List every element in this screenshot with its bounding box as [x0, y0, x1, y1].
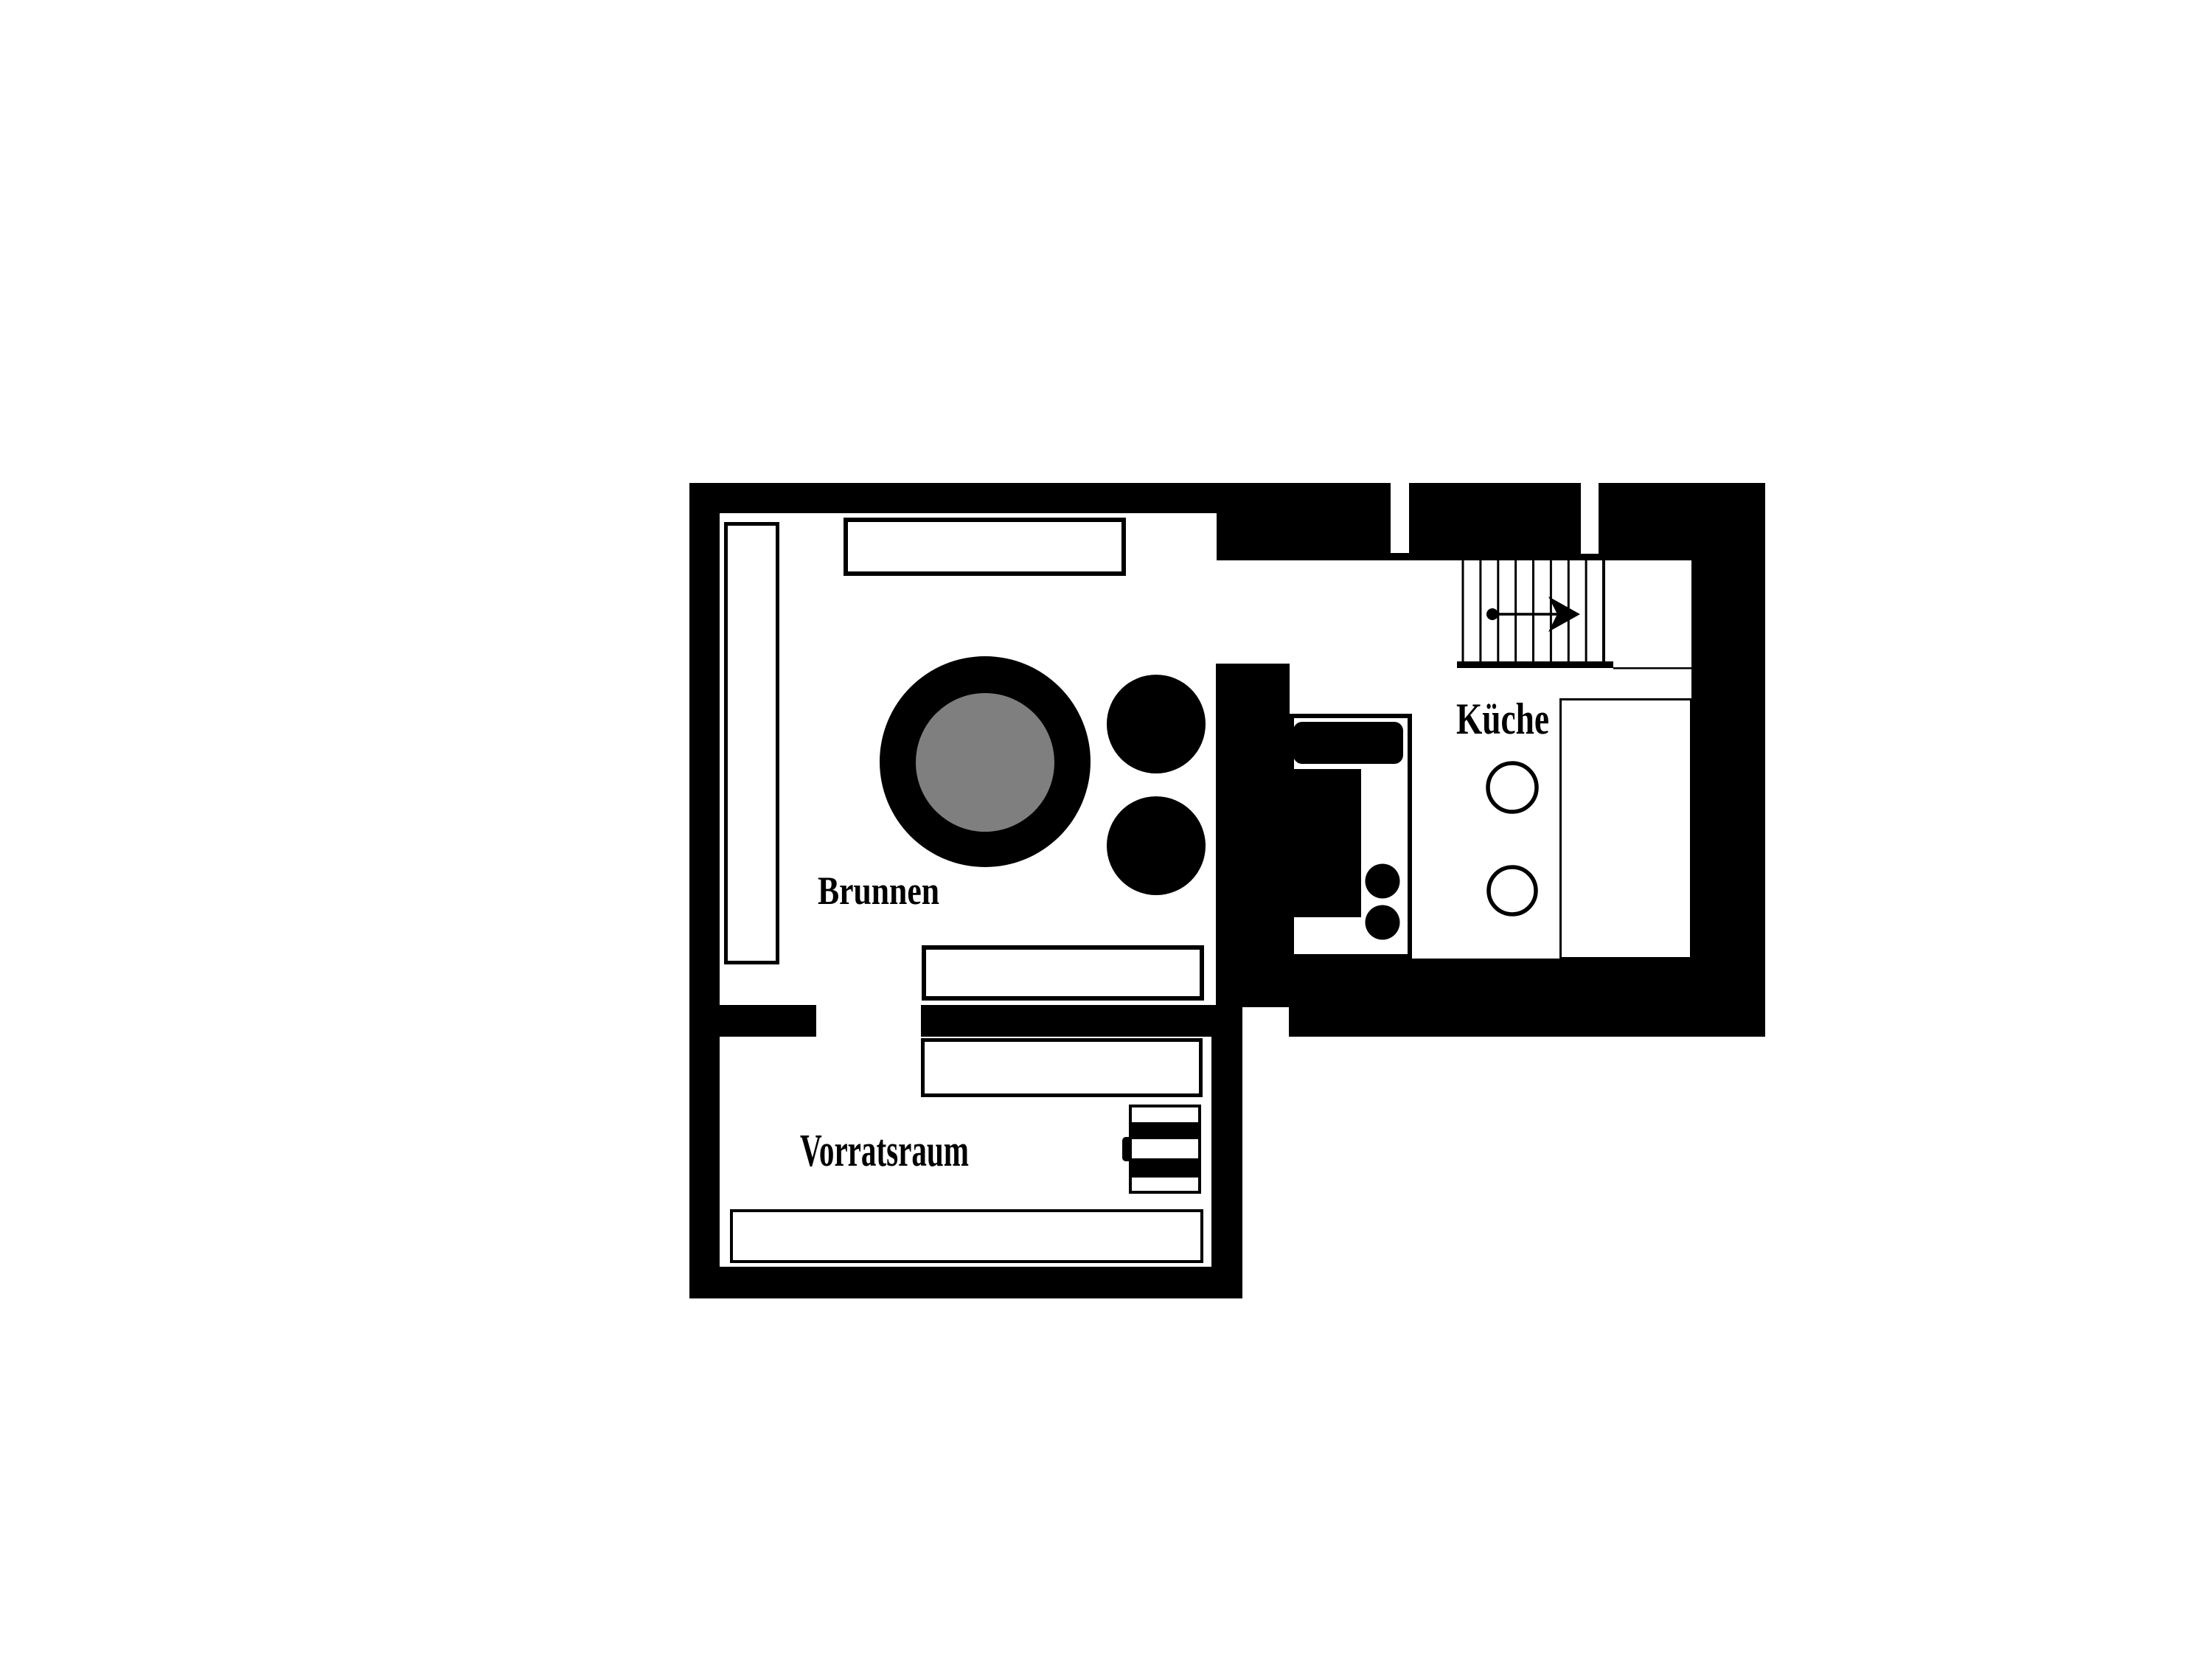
- svg-text:Küche: Küche: [1456, 695, 1549, 743]
- svg-text:Vorratsraum: Vorratsraum: [800, 1126, 969, 1176]
- svg-text:Brunnen: Brunnen: [818, 869, 939, 913]
